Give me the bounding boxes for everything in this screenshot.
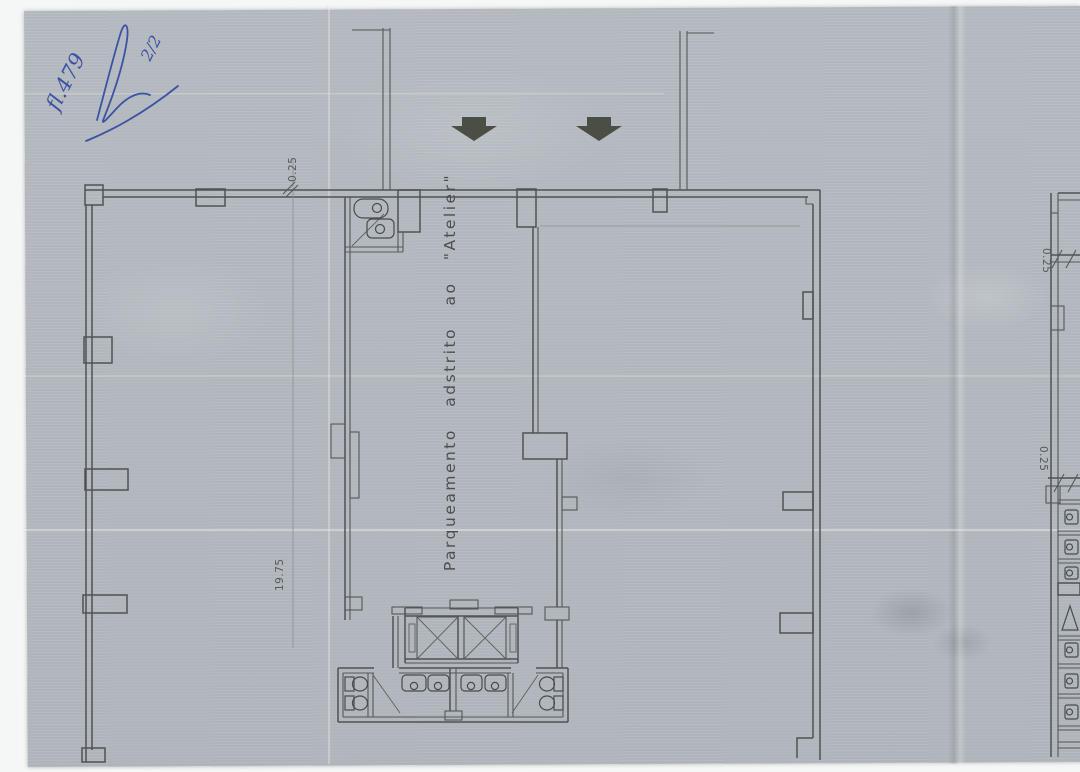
wall-block xyxy=(523,433,567,459)
sink-icon xyxy=(367,219,394,238)
wall-column xyxy=(83,595,127,613)
sheet-fraction: 2/2 xyxy=(136,32,165,64)
wall-column xyxy=(803,292,813,319)
toilet-icon xyxy=(345,696,368,710)
wall-column xyxy=(783,492,813,510)
toilet-icon xyxy=(1065,540,1078,554)
wall-pier xyxy=(350,432,359,498)
floor-plan-drawing: fl.479 2/2 xyxy=(0,0,1080,772)
toilet-icon xyxy=(540,677,564,691)
dimension-label: 0.25 xyxy=(1040,248,1052,273)
dimension-label: 0.25 xyxy=(1037,446,1049,471)
wall-jamb xyxy=(345,597,362,610)
toilet-icon xyxy=(1065,567,1078,579)
down-arrow-icon xyxy=(451,117,497,141)
down-arrow-icon xyxy=(576,117,622,141)
wall-column xyxy=(780,613,813,633)
wall-jamb xyxy=(517,189,536,227)
stall-row xyxy=(1058,500,1080,748)
wc-block xyxy=(338,668,568,722)
door-swing xyxy=(512,675,538,713)
sink-icon xyxy=(402,675,426,691)
corner-column xyxy=(85,185,103,205)
wall-block xyxy=(1058,583,1080,595)
folio-number: fl.479 xyxy=(40,49,90,116)
toilet-icon xyxy=(540,696,564,710)
toilet-icon xyxy=(345,677,368,691)
scanned-floor-plan-page: fl.479 2/2 xyxy=(0,0,1080,772)
top-bathroom xyxy=(345,190,420,252)
dimension-label: 0.25 xyxy=(287,157,299,182)
toilet-icon xyxy=(1065,643,1078,657)
toilet-icon xyxy=(1065,705,1078,719)
dimension-label: 19.75 xyxy=(274,558,286,591)
adjacent-plan-right: 0.25 0.25 xyxy=(1037,193,1080,757)
parking-area-label: Parqueamento adstrito ao "Atelier" xyxy=(441,173,459,571)
sink-icon xyxy=(428,675,449,691)
ramp-walls xyxy=(352,28,714,190)
pilaster xyxy=(653,189,667,212)
elevator-door xyxy=(409,624,415,652)
dimension-annotations: 0.25 19.75 xyxy=(274,157,299,648)
elevator-shafts xyxy=(392,600,532,668)
entrance-arrows xyxy=(451,117,622,141)
toilet-icon xyxy=(1065,510,1078,524)
sink-icon xyxy=(461,675,482,691)
wall-column xyxy=(84,337,112,363)
sink-icon xyxy=(485,675,506,691)
wall-niche xyxy=(331,424,345,458)
handwritten-annotations: fl.479 2/2 xyxy=(40,25,178,141)
wall-jamb xyxy=(545,607,569,620)
door-swing xyxy=(1062,606,1078,630)
wall-pier xyxy=(562,497,577,510)
toilet-icon xyxy=(1065,674,1078,688)
elevator-cab-icon xyxy=(464,617,506,659)
door-swing xyxy=(373,675,400,713)
elevator-cab-icon xyxy=(417,617,458,659)
elevator-door xyxy=(510,624,516,652)
